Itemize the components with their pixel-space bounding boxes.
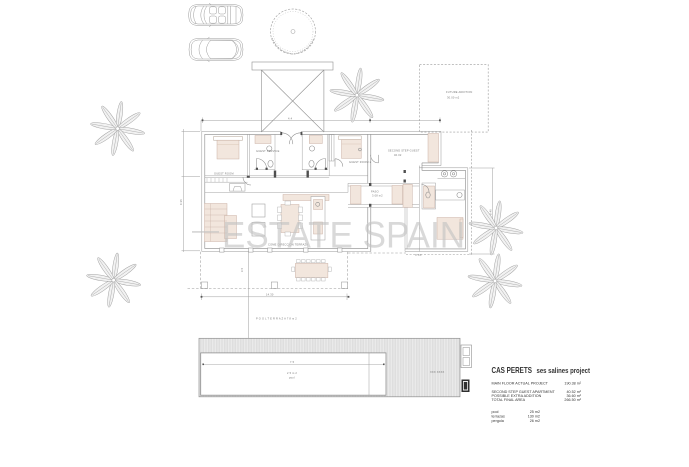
svg-text:26 m2: 26 m2 [530, 419, 540, 423]
svg-text:FUTURE ADDITION: FUTURE ADDITION [446, 90, 473, 94]
svg-text:266.50 m²: 266.50 m² [564, 398, 581, 402]
svg-text:190.38 m²: 190.38 m² [564, 382, 581, 386]
svg-text:XXX XXXX: XXX XXXX [430, 370, 445, 374]
svg-text:pool: pool [492, 410, 499, 414]
svg-text:2 5 m 2: 2 5 m 2 [287, 371, 297, 375]
svg-text:GUEST SERVICE: GUEST SERVICE [256, 149, 280, 153]
svg-text:MAIN FLOOR ACTUAL PROJECT: MAIN FLOOR ACTUAL PROJECT [492, 382, 549, 386]
svg-text:ESTATE SPAIN: ESTATE SPAIN [222, 215, 465, 256]
svg-text:ses salines project: ses salines project [537, 366, 591, 375]
svg-text:pergola: pergola [492, 419, 505, 423]
svg-text:130 m2: 130 m2 [528, 414, 540, 418]
svg-text:9.35: 9.35 [179, 199, 183, 205]
svg-text:3.5: 3.5 [240, 267, 244, 272]
svg-text:3.08 m2: 3.08 m2 [372, 194, 383, 198]
svg-text:CAS PERETS: CAS PERETS [492, 366, 533, 375]
svg-text:14.30: 14.30 [266, 292, 274, 296]
svg-text:PASO: PASO [371, 190, 379, 194]
svg-text:30.00 m2: 30.00 m2 [447, 96, 460, 100]
svg-text:SECOND STEP GUEST: SECOND STEP GUEST [388, 149, 420, 153]
svg-text:40.02: 40.02 [394, 153, 402, 157]
svg-text:terrazas: terrazas [492, 414, 505, 418]
svg-text:TOTAL FINAL AREA: TOTAL FINAL AREA [492, 398, 526, 402]
svg-text:pool: pool [289, 376, 295, 380]
svg-text:GUEST ROOM: GUEST ROOM [214, 172, 234, 176]
svg-text:25 m2: 25 m2 [530, 410, 540, 414]
svg-text:7.5: 7.5 [290, 360, 295, 364]
svg-text:GUEST ROOM 2: GUEST ROOM 2 [349, 160, 372, 164]
svg-text:P O O L T E R R A Z A 7 8: P O O L T E R R A Z A 7 8 m 2 [256, 317, 297, 321]
svg-text:4.4: 4.4 [288, 116, 293, 120]
